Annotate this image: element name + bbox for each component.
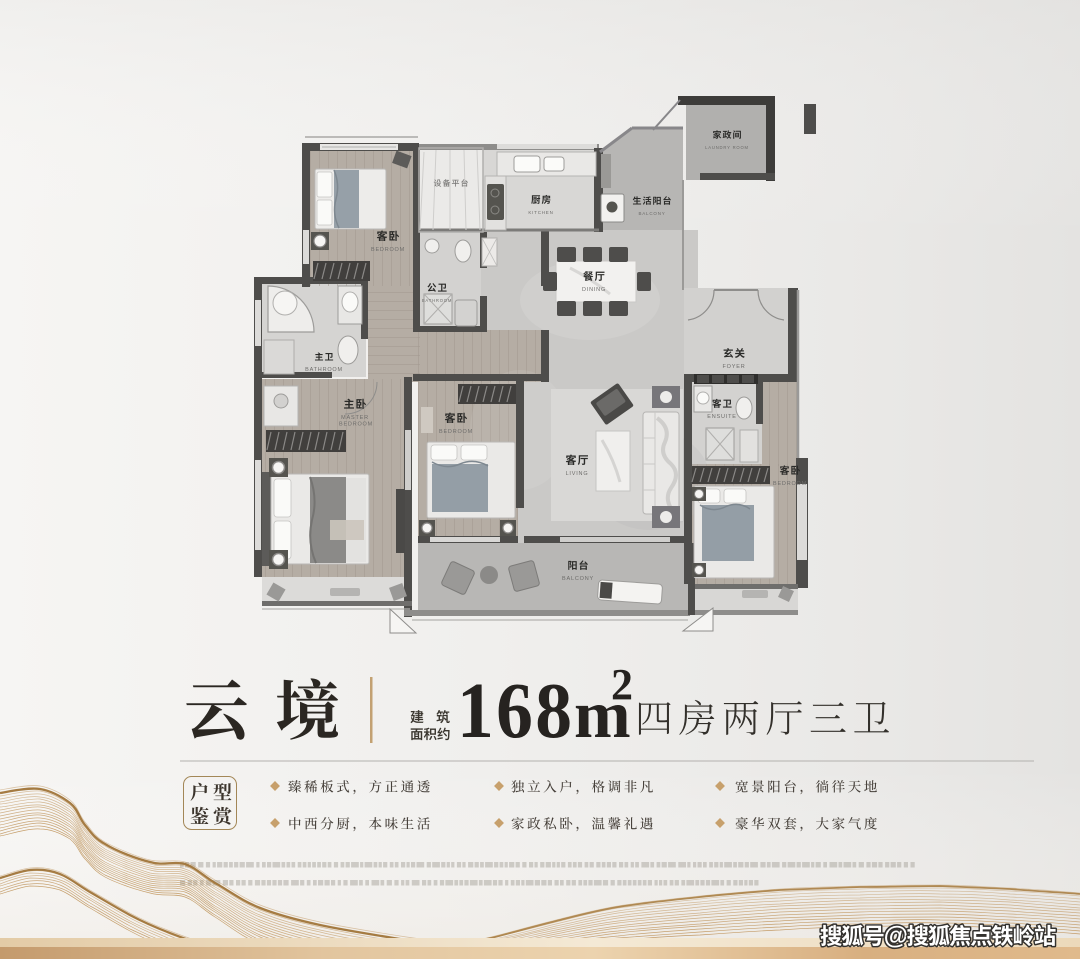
svg-text:168: 168 <box>457 666 574 754</box>
svg-text:BATHROOM: BATHROOM <box>422 298 452 303</box>
svg-text:DINING: DINING <box>582 287 606 293</box>
svg-text:LIVING: LIVING <box>566 471 589 477</box>
svg-text:BALCONY: BALCONY <box>562 576 594 582</box>
svg-text:BALCONY: BALCONY <box>638 211 665 216</box>
svg-text:BEDROOM: BEDROOM <box>773 481 807 487</box>
svg-text:2: 2 <box>611 660 633 709</box>
svg-text:FOYER: FOYER <box>723 364 746 370</box>
svg-text:@: @ <box>884 922 908 950</box>
svg-text:BATHROOM: BATHROOM <box>305 367 343 373</box>
svg-text:KITCHEN: KITCHEN <box>528 210 553 215</box>
svg-text:BEDROOM: BEDROOM <box>439 429 473 435</box>
svg-text:ENSUITE: ENSUITE <box>707 414 736 420</box>
svg-text:MASTERBEDROOM: MASTERBEDROOM <box>339 415 373 428</box>
svg-text:BEDROOM: BEDROOM <box>371 247 405 253</box>
svg-text:LAUNDRY ROOM: LAUNDRY ROOM <box>705 145 749 150</box>
